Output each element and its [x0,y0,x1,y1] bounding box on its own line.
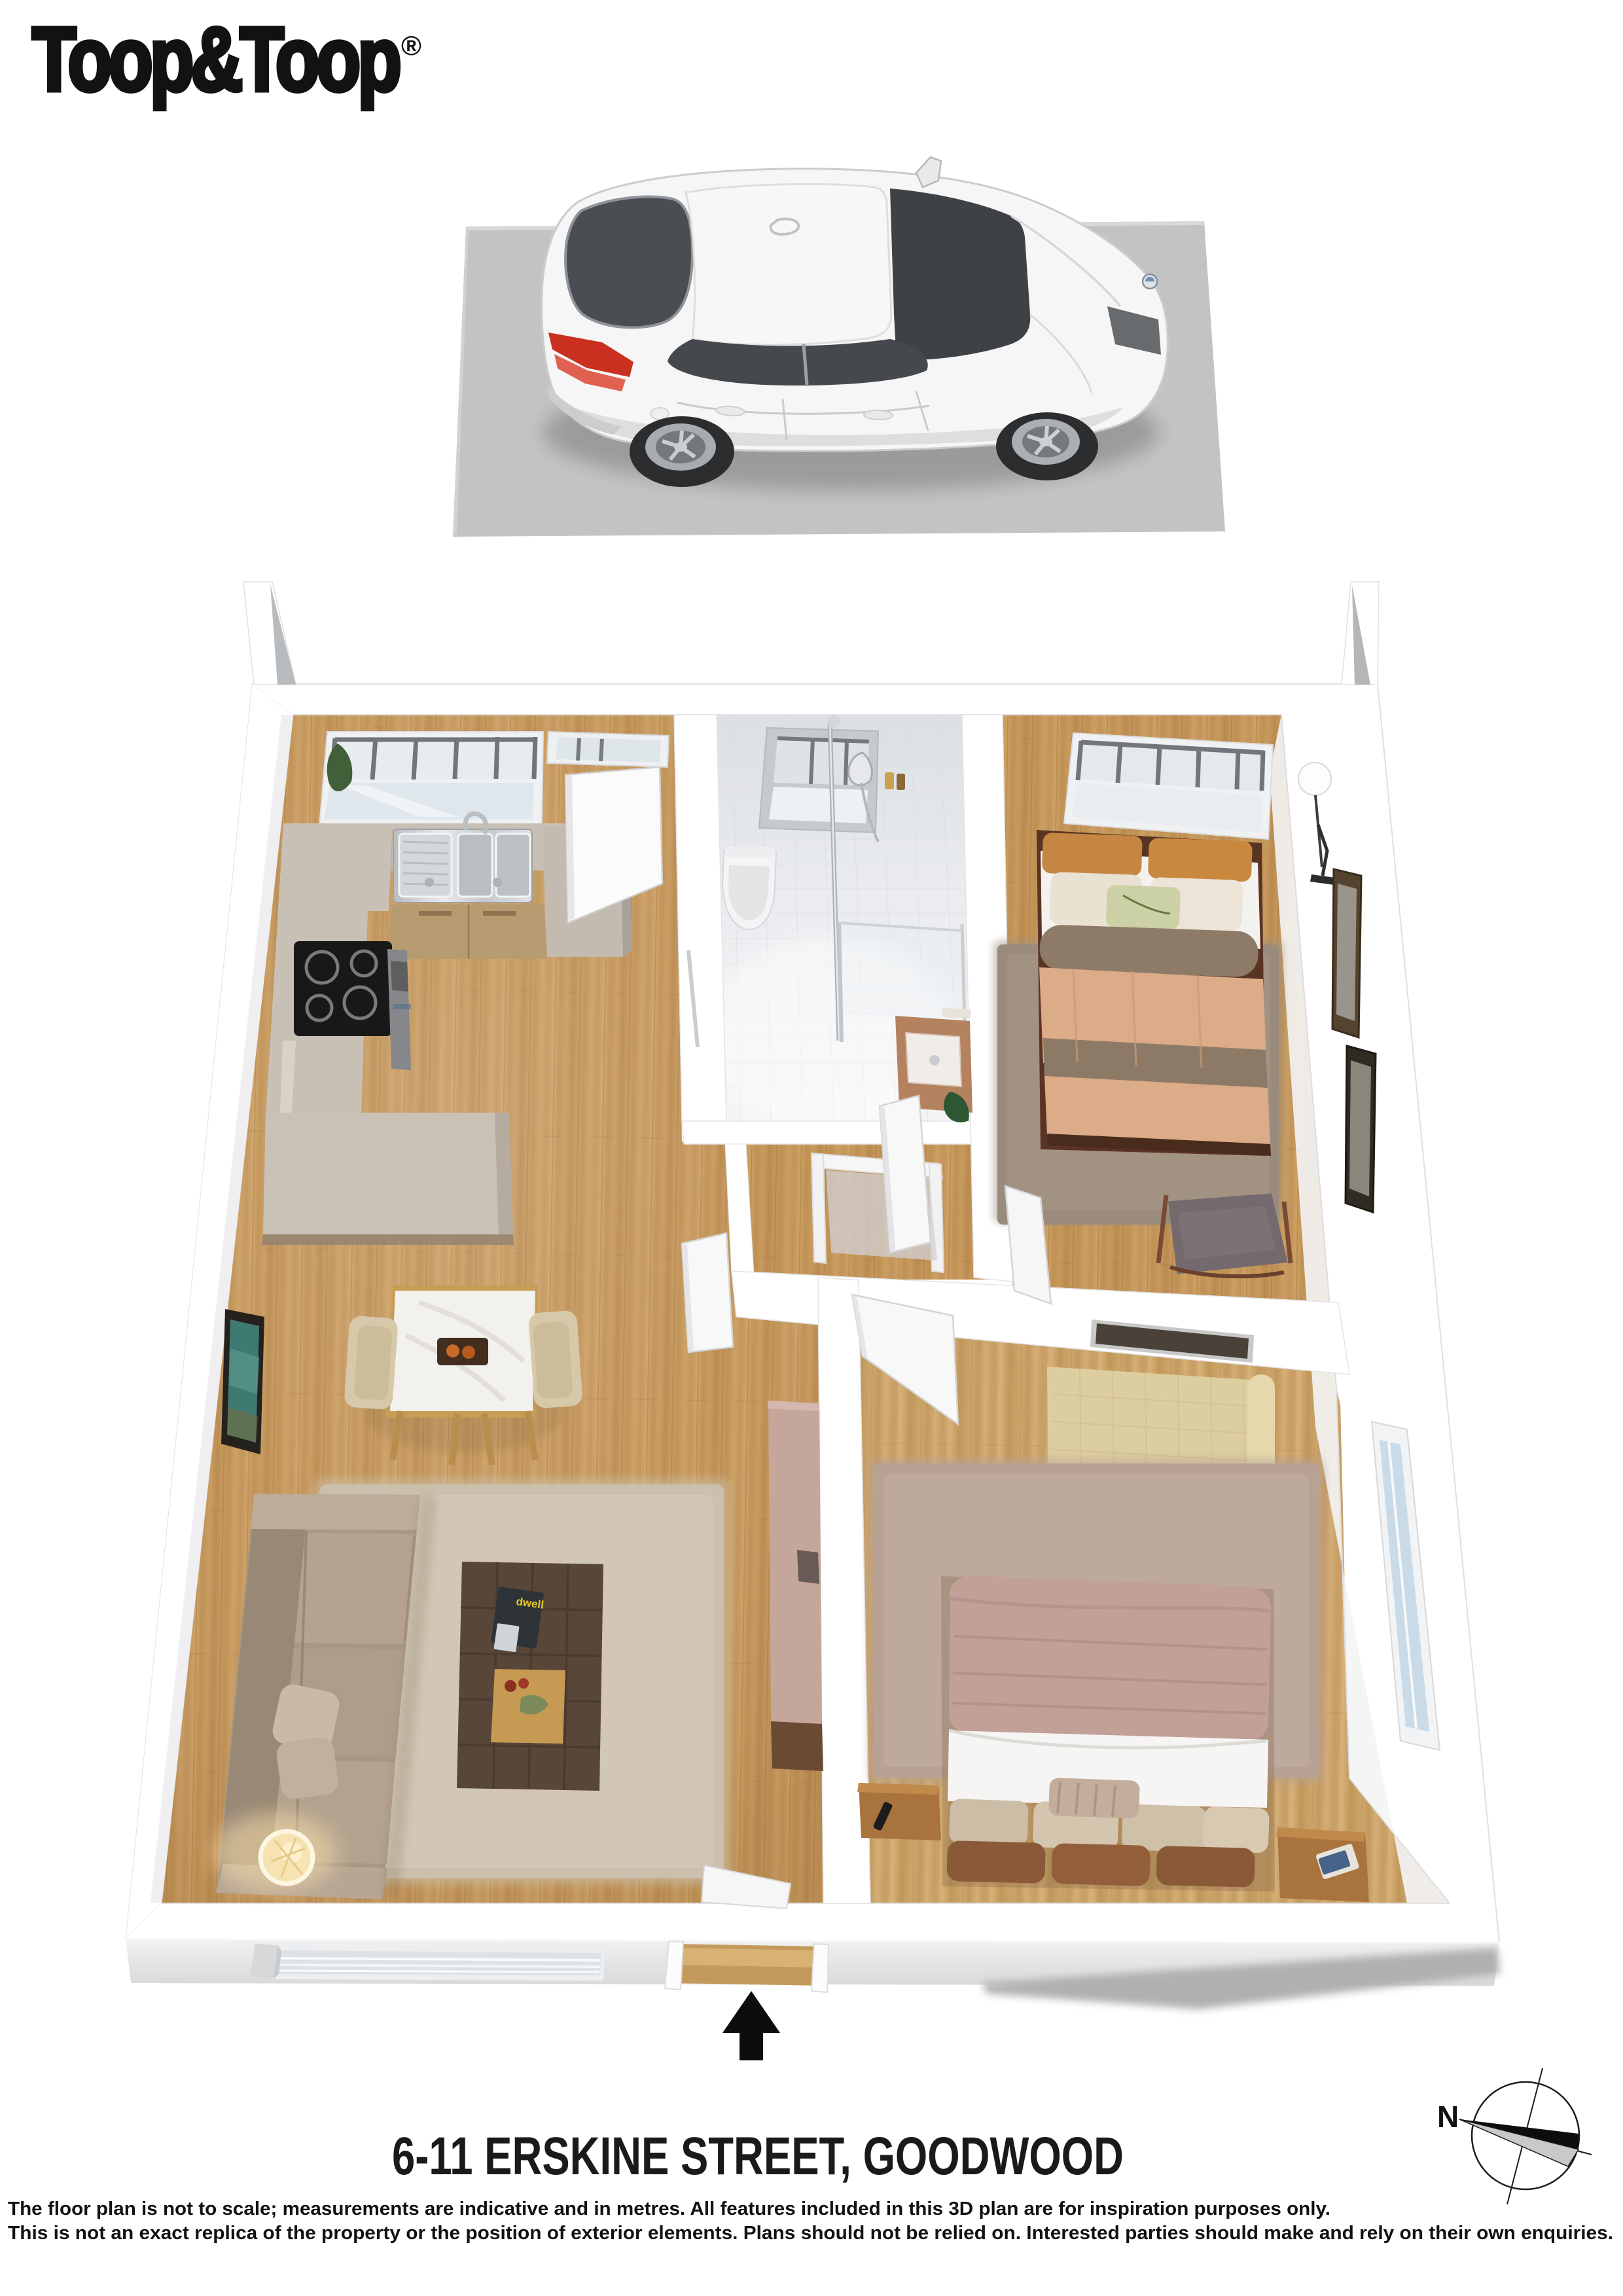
svg-text:6-11 ERSKINE STREET, GOODWOOD: 6-11 ERSKINE STREET, GOODWOOD [392,2126,1124,2186]
svg-text:Toop&Toop: Toop&Toop [32,9,399,110]
svg-text:The floor plan is not to scale: The floor plan is not to scale; measurem… [8,2198,1330,2219]
svg-text:N: N [1437,2100,1459,2134]
svg-text:®: ® [401,30,421,61]
svg-text:This is not an exact replica o: This is not an exact replica of the prop… [8,2223,1613,2244]
